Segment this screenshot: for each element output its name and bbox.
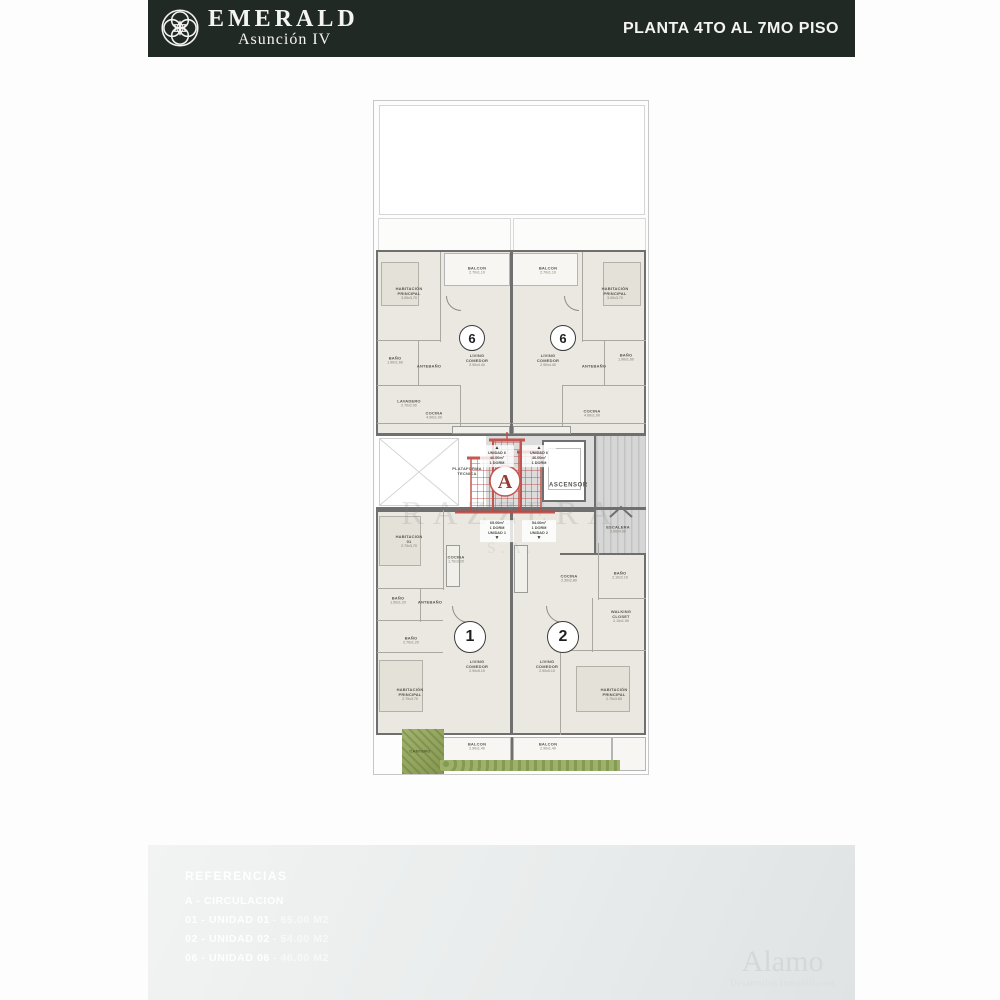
reference-item: A - CIRCULACION [185, 892, 329, 911]
bed [379, 660, 423, 712]
partition-line [418, 340, 419, 385]
partition-line [377, 588, 443, 589]
references-title: REFERENCIAS [185, 869, 329, 883]
wall-segment [594, 435, 596, 555]
emerald-rosette-icon [160, 8, 200, 48]
reference-item: 06 - UNIDAD 06- 46.00 M2 [185, 949, 329, 968]
logo-letter: A [498, 471, 513, 493]
planter-box [402, 729, 444, 774]
wall-segment [510, 252, 513, 435]
partition-line [377, 385, 461, 386]
kitchen-counter [514, 545, 528, 593]
partition-line [420, 588, 421, 622]
partition-line [562, 385, 646, 386]
floor-plate-label: PLANTA 4TO AL 7MO PISO [623, 20, 839, 38]
partition-line [443, 510, 444, 590]
kitchen-counter [446, 545, 460, 587]
alamo-building-logo-icon: A [453, 428, 557, 524]
partition-line [583, 340, 646, 341]
partition-line [560, 650, 646, 651]
terrace-box [379, 105, 645, 215]
unit-info-block: 65.00m²1 DORMUNIDAD 1▼ [480, 520, 514, 542]
upper-strip-left [378, 218, 511, 252]
alamo-logo-subtitle: Desarrollos Inmobiliarios [730, 978, 835, 988]
partition-line [598, 598, 646, 599]
unit-info-block: 54.00m²1 DORMUNIDAD 2▼ [522, 520, 556, 542]
upper-strip-right [513, 218, 646, 252]
wall-segment [510, 510, 513, 735]
stairwell [596, 435, 646, 555]
partition-line [377, 340, 440, 341]
unit-badge: 1 [454, 621, 486, 653]
technical-void [379, 438, 459, 506]
partition-line [560, 650, 561, 735]
void-x-icon [380, 439, 458, 505]
unit-badge: 2 [547, 621, 579, 653]
balcony-top-right [512, 253, 578, 286]
alamo-logo: Alamo Desarrollos Inmobiliarios [730, 945, 835, 988]
bed [381, 262, 419, 306]
arrow-down-icon: ▼ [480, 536, 514, 541]
wall-segment [560, 553, 646, 555]
unit-info-block: ▲UNIDAD 646.00m²1 DORM [480, 445, 514, 467]
partition-line [604, 340, 605, 385]
unit-badge: 6 [459, 325, 485, 351]
references-list: A - CIRCULACION01 - UNIDAD 01- 65.00 M20… [185, 892, 329, 968]
bed [379, 516, 421, 566]
brand: EMERALD Asunción IV [160, 7, 359, 49]
brand-name: EMERALD [208, 7, 359, 31]
footer-panel: REFERENCIAS A - CIRCULACION01 - UNIDAD 0… [148, 845, 855, 1000]
partition-line [598, 543, 599, 600]
balcony-top-left [444, 253, 510, 286]
arrow-down-icon: ▼ [522, 536, 556, 541]
partition-line [582, 252, 583, 342]
partition-line [440, 252, 441, 342]
partition-line [377, 423, 511, 424]
bed [576, 666, 630, 712]
brand-subtitle: Asunción IV [208, 31, 359, 49]
reference-item: 02 - UNIDAD 02- 54.00 M2 [185, 930, 329, 949]
references-block: REFERENCIAS A - CIRCULACION01 - UNIDAD 0… [185, 869, 329, 968]
hedge-plants [440, 760, 620, 771]
alamo-logo-name: Alamo [730, 945, 835, 978]
header-bar: EMERALD Asunción IV PLANTA 4TO AL 7MO PI… [148, 0, 855, 57]
partition-line [377, 652, 443, 653]
brand-text: EMERALD Asunción IV [208, 7, 359, 49]
reference-item: 01 - UNIDAD 01- 65.00 M2 [185, 911, 329, 930]
bed [603, 262, 641, 306]
unit-info-block: ▲UNIDAD 646.00m²1 DORM [522, 445, 556, 467]
partition-line [512, 423, 646, 424]
partition-line [377, 620, 443, 621]
partition-line [592, 598, 593, 652]
page: EMERALD Asunción IV PLANTA 4TO AL 7MO PI… [0, 0, 1000, 1000]
unit-badge: 6 [550, 325, 576, 351]
